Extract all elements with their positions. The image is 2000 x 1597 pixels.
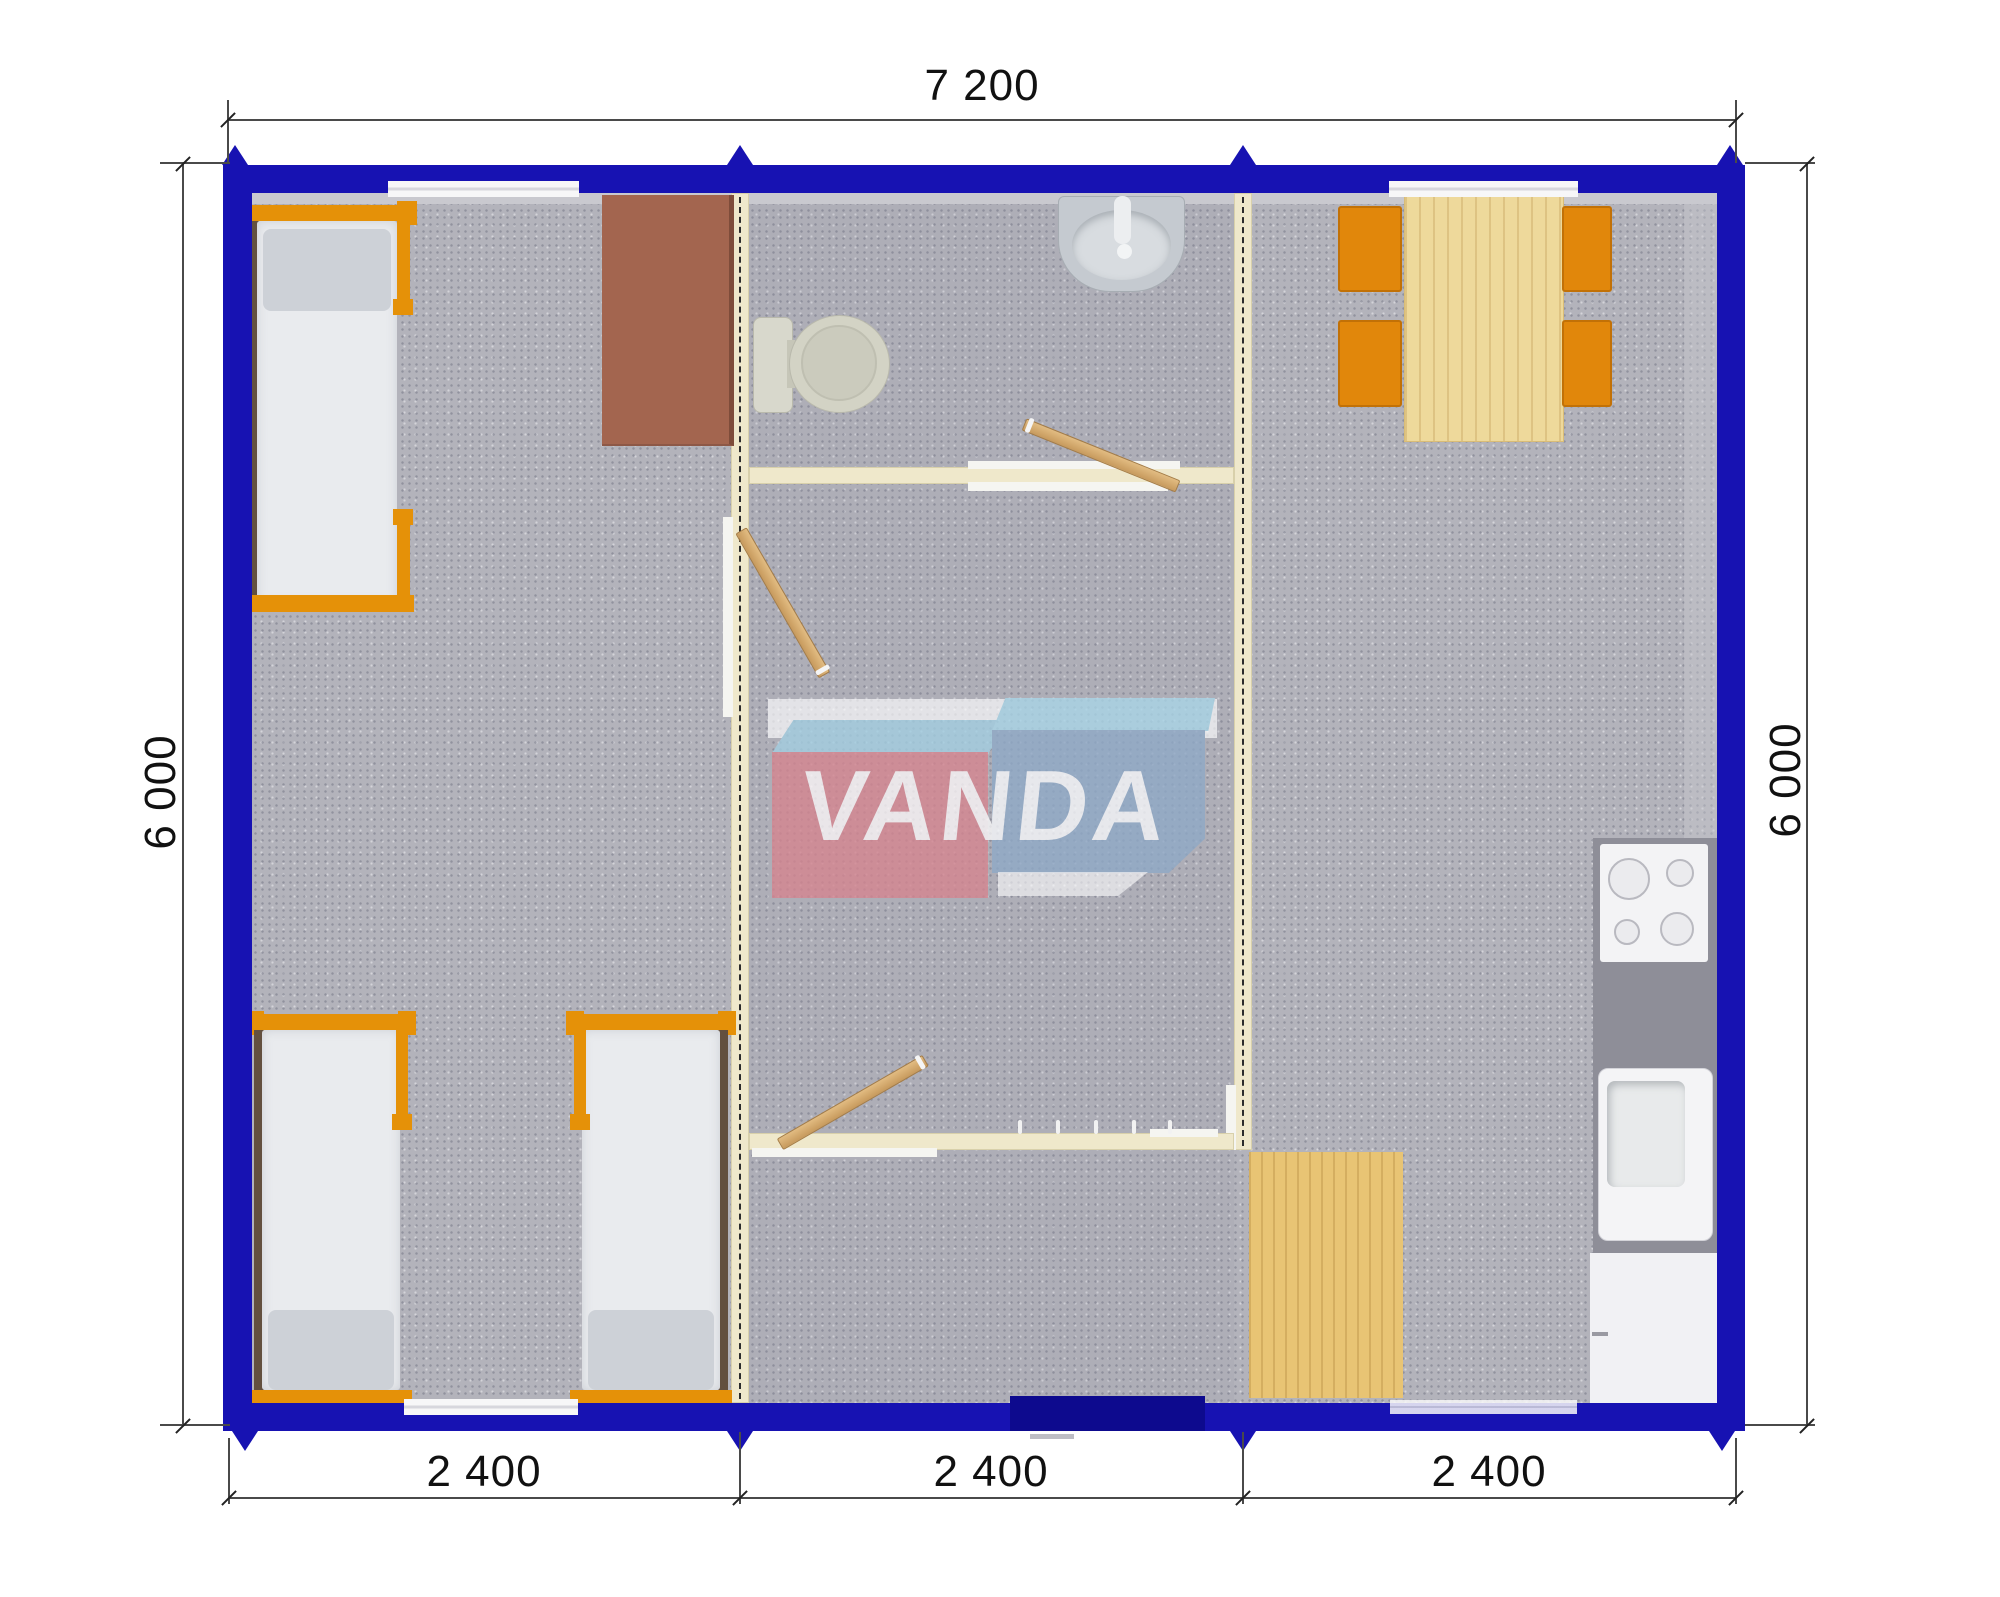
- logo-white-wedge: [998, 872, 1148, 896]
- bed-bottom-middle: [570, 1014, 732, 1403]
- burner-icon: [1614, 919, 1640, 945]
- bedroom-door-frame: [723, 517, 733, 717]
- dining-table: [1404, 192, 1564, 442]
- exterior-wall-right: [1717, 165, 1745, 1431]
- bed-rail-nub: [570, 1114, 590, 1130]
- bed-bottom-left: [250, 1014, 412, 1403]
- connector-arrow-icon: [727, 145, 753, 165]
- dining-chair: [1338, 320, 1402, 407]
- burner-icon: [1660, 912, 1694, 946]
- entrance-threshold: [1030, 1434, 1074, 1439]
- desk: [602, 195, 734, 446]
- entrance-door-frame: [752, 1148, 937, 1157]
- bed-top-left: [247, 203, 414, 612]
- dining-chair: [1562, 206, 1612, 292]
- dim-extension: [739, 1432, 741, 1504]
- bed-pillow: [588, 1310, 714, 1390]
- washbasin: [1058, 196, 1185, 296]
- dim-line-bottom: [228, 1497, 1736, 1499]
- dim-label-bottom-middle: 2 400: [891, 1450, 1091, 1494]
- dim-label-bottom-left: 2 400: [384, 1450, 584, 1494]
- kitchen-sink: [1598, 1068, 1713, 1241]
- low-wooden-table: [1249, 1152, 1403, 1398]
- watermark-logo: VANDA: [760, 690, 1230, 910]
- entrance-wall-lining: [1150, 1129, 1218, 1137]
- bed-pillow: [263, 229, 391, 311]
- cooktop: [1600, 844, 1708, 962]
- bed-side-rail: [397, 221, 410, 303]
- bed-head-rail: [247, 205, 414, 221]
- coat-hook-icon: [1094, 1120, 1098, 1134]
- burner-icon: [1608, 858, 1650, 900]
- dim-extension: [1735, 100, 1737, 163]
- logo-right-box-top: [992, 698, 1215, 731]
- faucet-icon: [1114, 196, 1131, 244]
- bed-rail-nub: [392, 1114, 412, 1130]
- door-handle-icon: [1024, 418, 1034, 434]
- bed-head-rail: [570, 1014, 732, 1030]
- connector-arrow-icon: [1230, 145, 1256, 165]
- coat-hook-icon: [1168, 1120, 1172, 1134]
- toilet-seat: [801, 325, 877, 401]
- coat-hook-icon: [1056, 1120, 1060, 1134]
- bed-pillow: [268, 1310, 394, 1390]
- kitchen-cabinet: [1590, 1253, 1717, 1403]
- bed-rail-nub: [393, 509, 413, 525]
- connector-arrow-icon: [232, 1431, 258, 1451]
- exterior-wall-left: [223, 165, 252, 1431]
- dim-extension: [1242, 1432, 1244, 1504]
- dim-label-right: 6 000: [1764, 680, 1808, 880]
- dining-chair: [1338, 206, 1402, 292]
- bed-foot-rail: [247, 595, 414, 612]
- window-bottom-left: [404, 1399, 578, 1415]
- bed-side-rail: [396, 1030, 408, 1122]
- burner-icon: [1666, 859, 1694, 887]
- bed-foot-rail: [250, 1390, 412, 1403]
- window-top-right: [1389, 181, 1578, 197]
- bathroom-door-frame-bottom: [968, 482, 1168, 491]
- dim-extension: [160, 162, 230, 164]
- coat-hook-icon: [1018, 1120, 1022, 1134]
- toilet: [753, 315, 893, 415]
- right-wall-lining: [1684, 203, 1717, 838]
- bed-head-rail: [250, 1014, 412, 1030]
- floor-plan: VANDA: [0, 0, 2000, 1597]
- window-top-left: [388, 181, 579, 197]
- bed-rail-nub: [393, 299, 413, 315]
- bed-side-rail: [574, 1030, 586, 1122]
- dim-label-left: 6 000: [139, 692, 183, 892]
- logo-text: VANDA: [765, 756, 1206, 856]
- dim-label-top: 7 200: [882, 64, 1082, 108]
- connector-arrow-icon: [1717, 145, 1743, 165]
- kitchen-sink-basin: [1607, 1081, 1685, 1187]
- dim-extension: [160, 1424, 230, 1426]
- dim-label-bottom-right: 2 400: [1389, 1450, 1589, 1494]
- module-junction-wall-right: [1234, 193, 1252, 1150]
- logo-left-box-top: [772, 720, 1010, 753]
- window-bottom-right: [1390, 1400, 1577, 1414]
- connector-arrow-icon: [1709, 1431, 1735, 1451]
- bed-side-rail: [397, 521, 410, 603]
- entrance-exterior-door: [1010, 1396, 1205, 1431]
- dining-chair: [1562, 320, 1612, 407]
- cabinet-handle: [1592, 1332, 1608, 1336]
- bed-foot-rail: [570, 1390, 732, 1403]
- coat-hook-icon: [1132, 1120, 1136, 1134]
- dim-extension: [227, 100, 229, 163]
- dim-line-top: [228, 119, 1736, 121]
- faucet-knob: [1117, 244, 1132, 259]
